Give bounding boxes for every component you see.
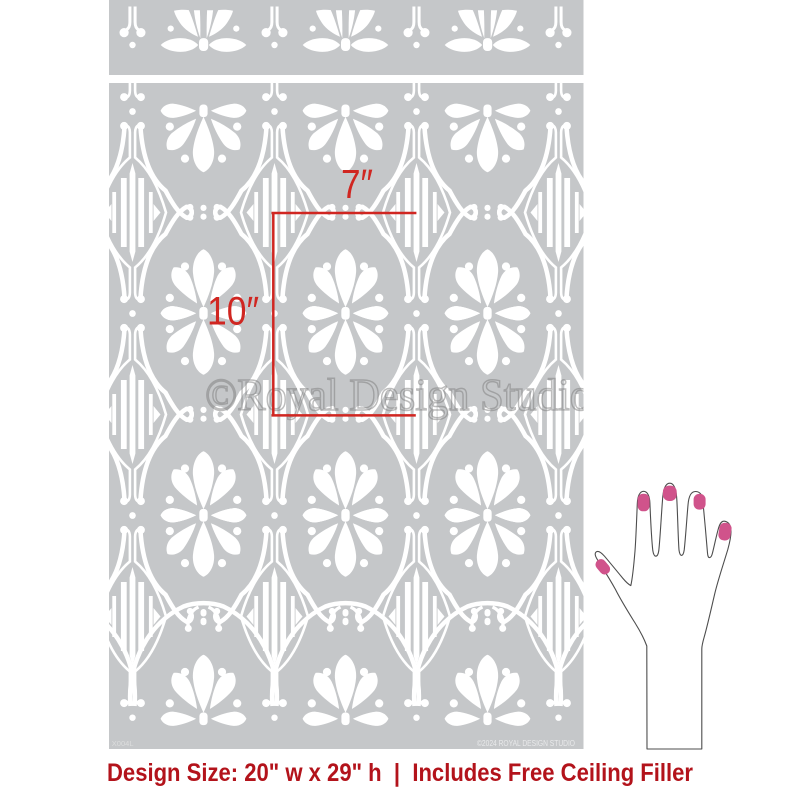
svg-text:©2024 ROYAL DESIGN STUDIO: ©2024 ROYAL DESIGN STUDIO: [477, 739, 575, 748]
svg-text:©Royal Design Studio: ©Royal Design Studio: [205, 370, 591, 420]
svg-text:7″: 7″: [341, 161, 373, 207]
svg-text:X004L: X004L: [112, 739, 134, 748]
svg-text:10″: 10″: [207, 290, 259, 334]
svg-text:Design Size: 20" w x 29" h |: Design Size: 20" w x 29" h | Includes Fr…: [107, 759, 693, 787]
